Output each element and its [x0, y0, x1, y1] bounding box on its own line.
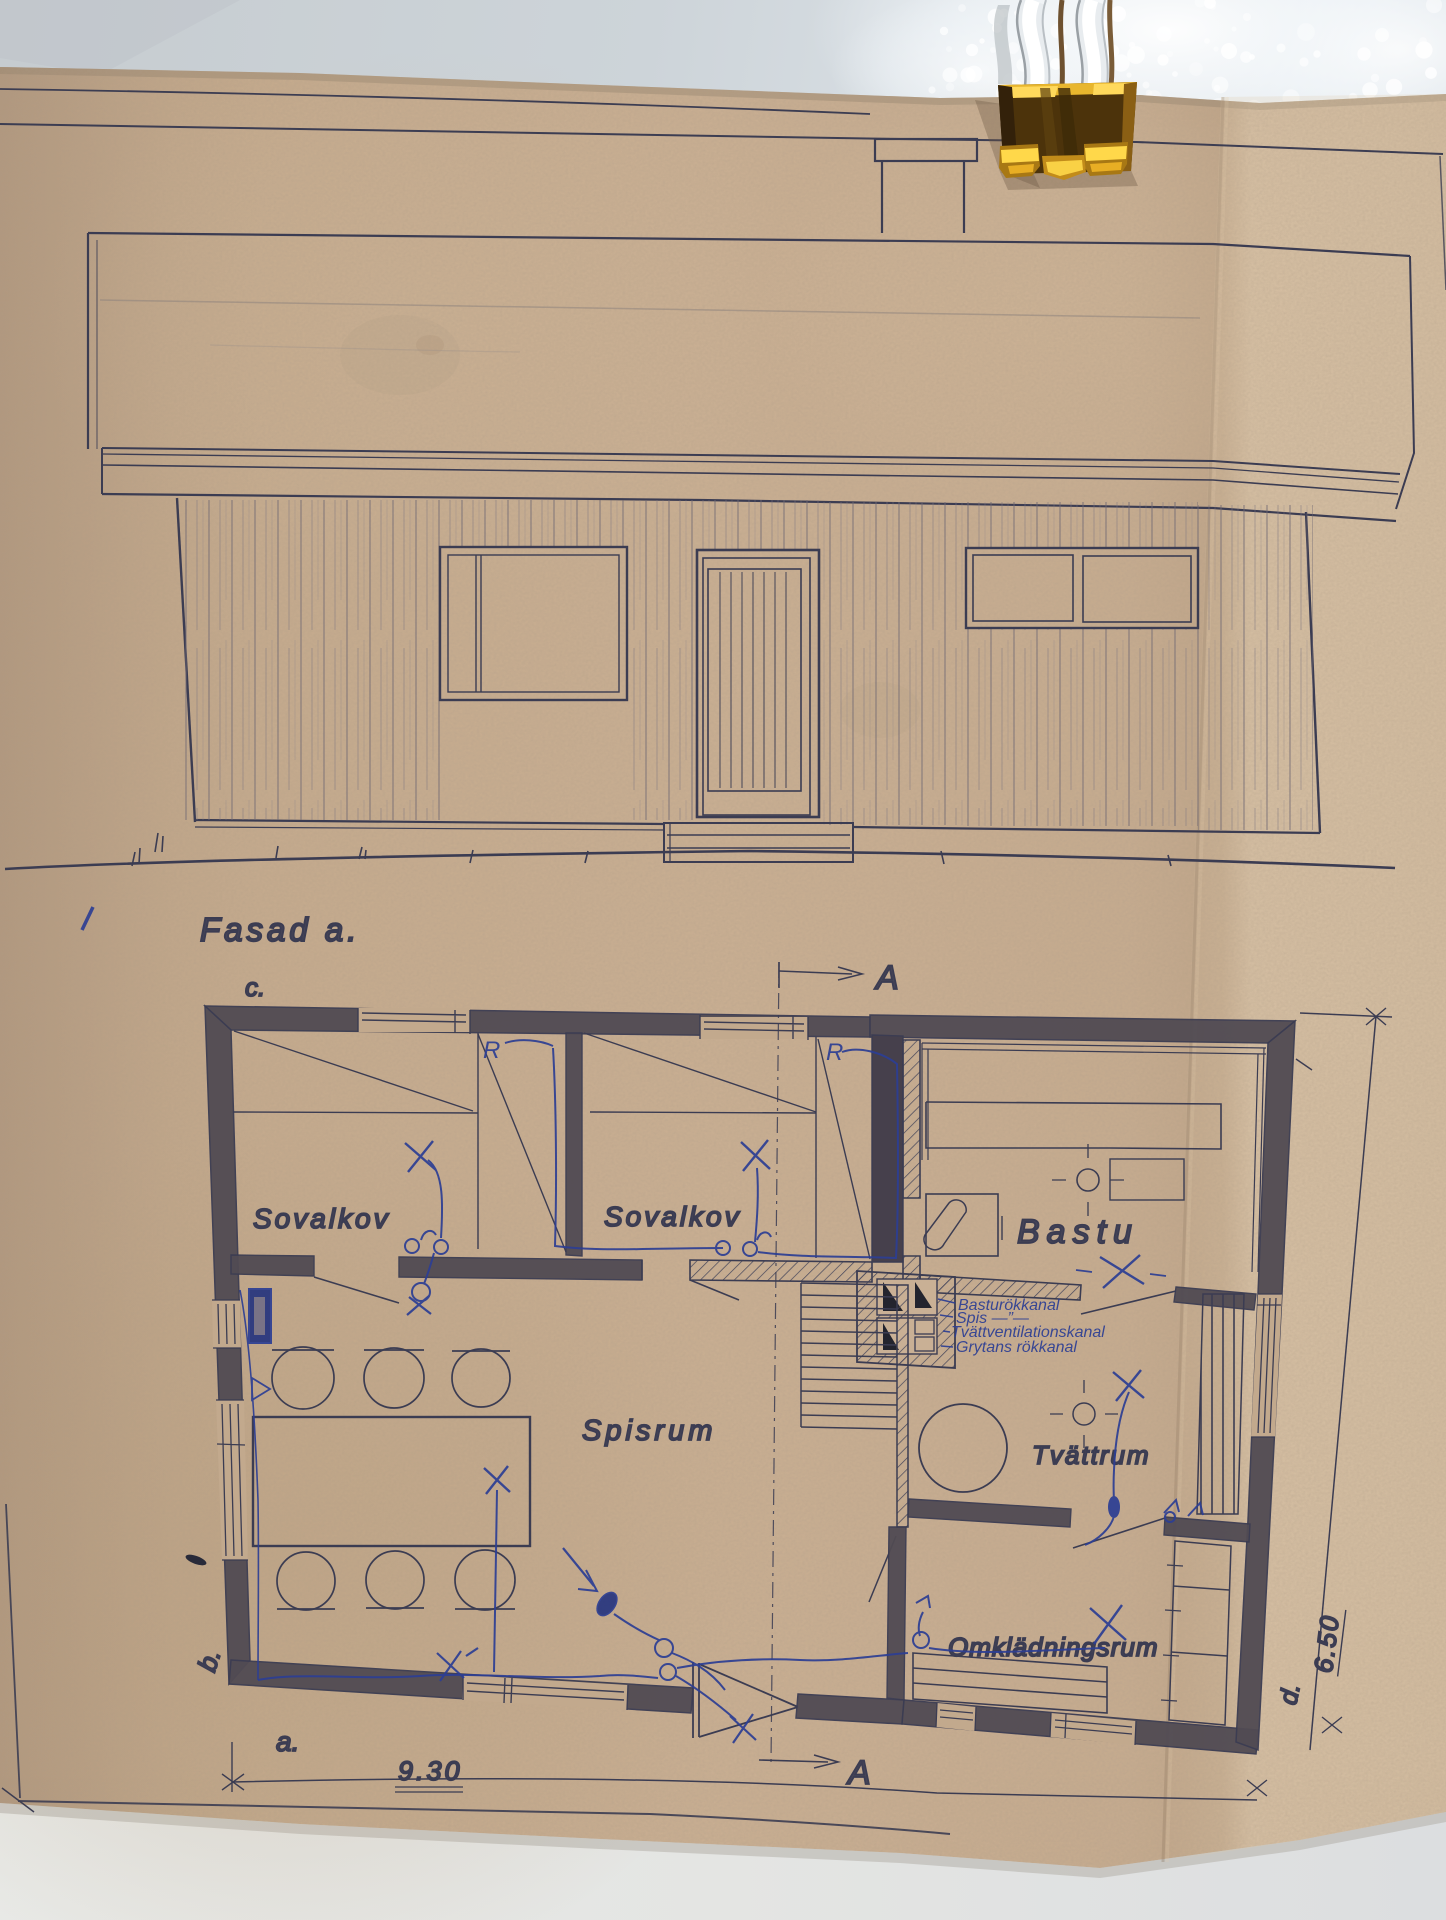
svg-text:Omklädningsrum: Omklädningsrum — [948, 1632, 1159, 1662]
svg-text:Tvättrum: Tvättrum — [1032, 1440, 1151, 1470]
svg-text:Fasad a.: Fasad a. — [200, 911, 360, 948]
svg-text:Grytans rökkanal: Grytans rökkanal — [956, 1339, 1077, 1356]
svg-text:c.: c. — [245, 972, 265, 1002]
svg-text:a.: a. — [276, 1726, 299, 1757]
svg-text:A: A — [846, 1754, 871, 1792]
svg-text:9.30: 9.30 — [398, 1756, 463, 1786]
svg-text:A: A — [874, 959, 899, 997]
svg-text:Sovalkov: Sovalkov — [604, 1201, 742, 1232]
svg-text:R: R — [826, 1039, 843, 1066]
svg-text:Sovalkov: Sovalkov — [253, 1203, 391, 1234]
svg-text:R: R — [483, 1037, 500, 1064]
svg-text:Spisrum: Spisrum — [582, 1415, 716, 1447]
svg-text:Bastu: Bastu — [1017, 1213, 1139, 1251]
